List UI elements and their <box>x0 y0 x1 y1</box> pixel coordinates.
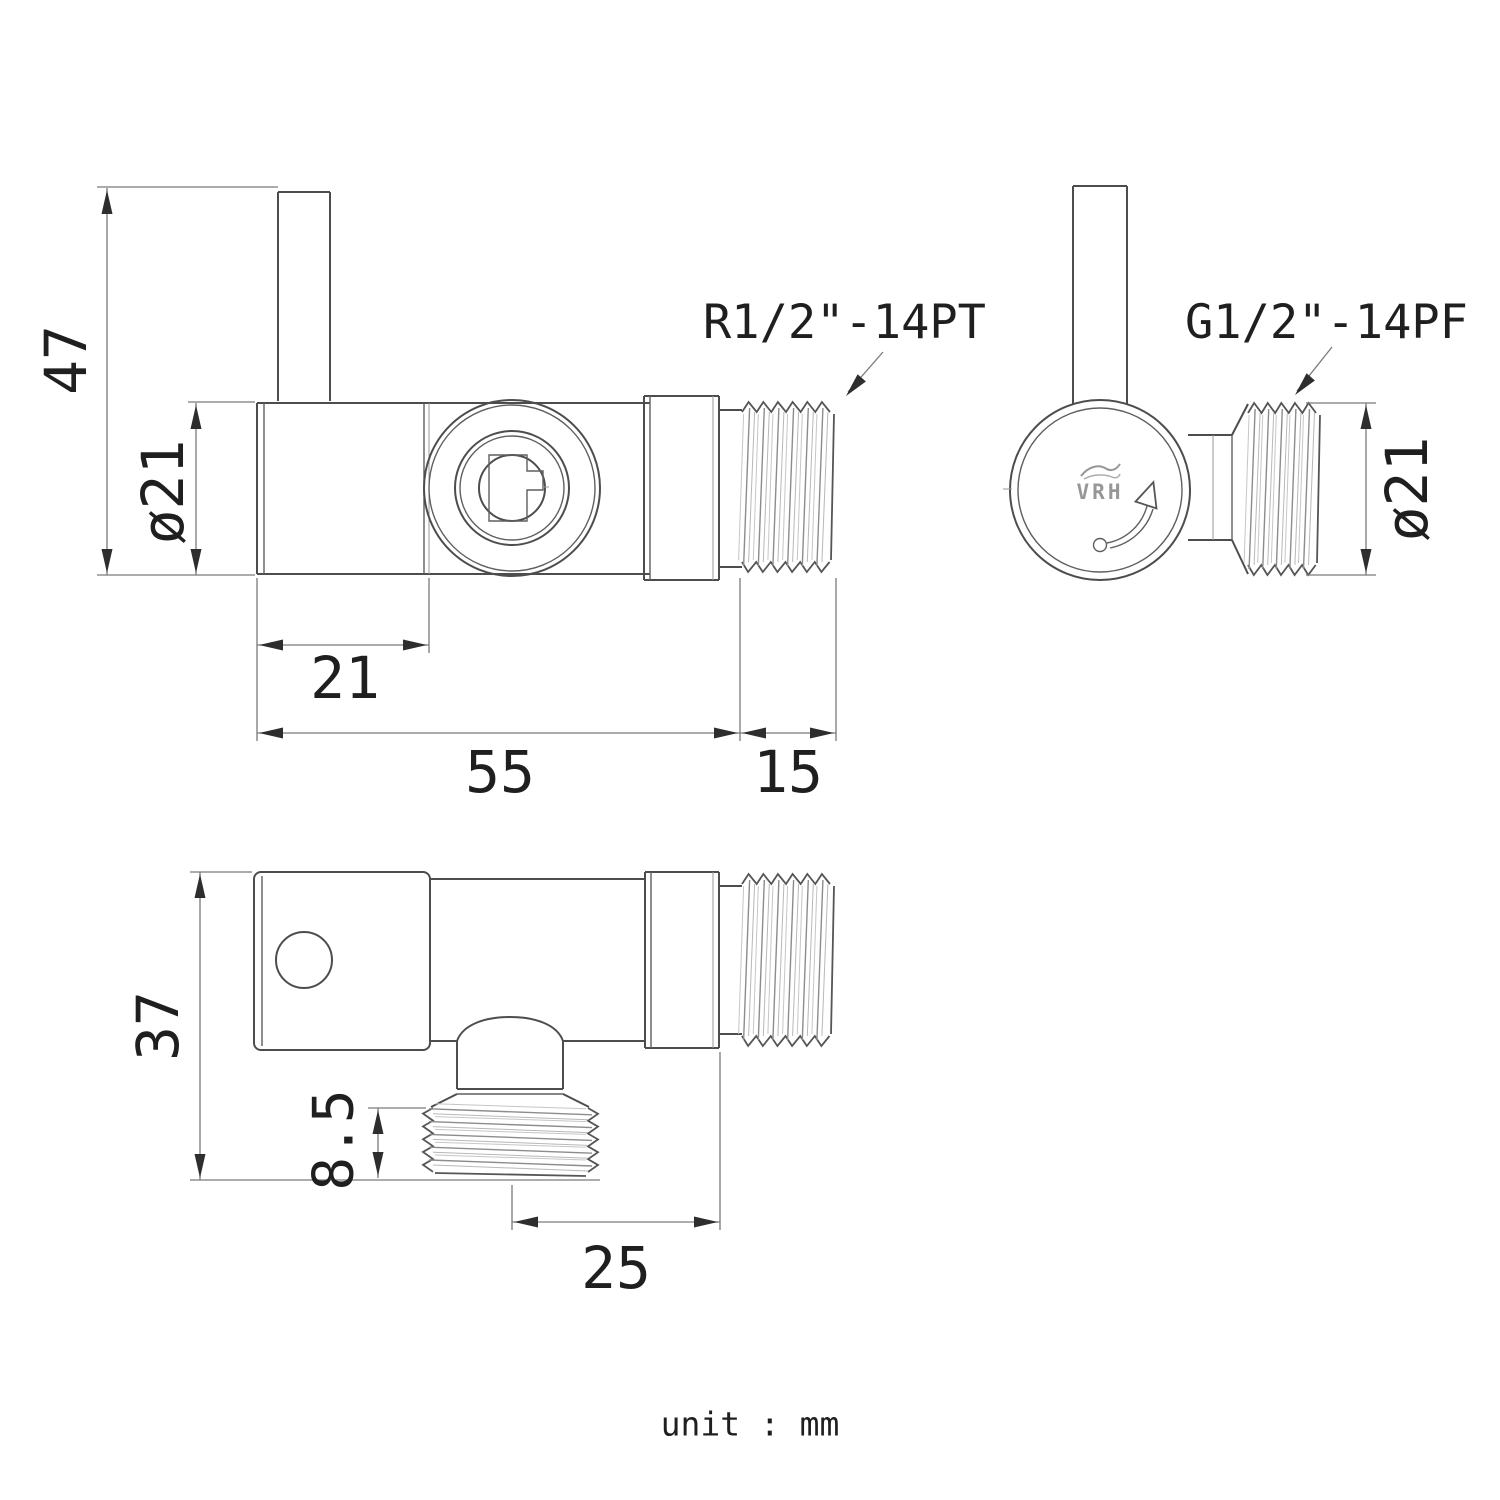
arrowhead-icon <box>403 640 427 651</box>
arrowhead-icon <box>102 190 113 214</box>
arrowhead-icon <box>195 1154 206 1178</box>
arrowhead-icon <box>259 728 283 739</box>
brand-logo-text: VRH <box>1077 480 1124 504</box>
outlet-thread-spec-label: G1/2"-14PF <box>1185 295 1468 350</box>
thread-line <box>1309 413 1315 565</box>
arrowhead-icon <box>810 728 834 739</box>
dim-15-label: 15 <box>753 738 823 806</box>
thread-line <box>1249 409 1255 569</box>
thread-line <box>758 408 764 566</box>
thread-line <box>831 886 834 1034</box>
thread-line <box>1248 565 1316 575</box>
bottom-outlet <box>431 1017 589 1107</box>
arrowhead-icon <box>195 874 206 898</box>
thread-line <box>742 402 830 412</box>
arrowhead-icon <box>694 1217 718 1228</box>
inlet-threads-top-view <box>739 874 834 1046</box>
handle-screw-hole <box>276 932 332 988</box>
brand-wave-icon <box>1081 464 1120 479</box>
body-tube <box>430 879 645 1041</box>
thread-line <box>1295 413 1301 565</box>
thread-line <box>817 880 823 1040</box>
thread-line <box>1276 409 1282 569</box>
thread-line <box>758 880 764 1040</box>
arrowhead-icon <box>1361 405 1372 429</box>
thread-line <box>822 884 828 1036</box>
thread-line <box>1263 409 1269 569</box>
thread-line <box>429 1134 592 1140</box>
thread-line <box>1285 415 1290 563</box>
thread-line <box>744 408 750 566</box>
thread-line <box>773 880 779 1040</box>
top-view: 37 8.5 25 <box>124 872 834 1302</box>
ball-housing <box>424 400 600 576</box>
arrowhead-icon <box>102 549 113 573</box>
thread-line <box>788 880 794 1040</box>
arrowhead-icon <box>714 728 738 739</box>
dim-55-label: 55 <box>465 738 535 806</box>
thread-line <box>802 880 808 1040</box>
thread-line <box>429 1147 592 1153</box>
dim-37-label: 37 <box>124 991 192 1061</box>
arrowhead-icon <box>1361 549 1372 573</box>
arrowhead-icon <box>842 374 866 399</box>
arrowhead-icon <box>259 640 283 651</box>
thread-line <box>817 408 823 566</box>
thread-line <box>744 880 750 1040</box>
handle-stem <box>278 192 330 401</box>
thread-line <box>1244 415 1249 563</box>
thread-line <box>433 1165 588 1171</box>
dim-25-label: 25 <box>581 1234 651 1302</box>
dim-47-label: 47 <box>32 325 100 395</box>
outlet-neck <box>1188 404 1248 574</box>
thread-line <box>742 874 830 884</box>
thread-line <box>739 886 744 1034</box>
inlet-thread-spec-label: R1/2"-14PT <box>703 295 986 350</box>
thread-line <box>1299 415 1304 563</box>
valve-technical-drawing: 47 ø21 21 55 15 R1/2"-14PT <box>0 0 1500 1500</box>
rotation-arrowhead <box>1136 482 1157 508</box>
thread-line <box>1304 409 1310 569</box>
arrowhead-icon <box>191 549 202 573</box>
arrowhead-icon <box>373 1152 384 1176</box>
arrowhead-icon <box>514 1217 538 1228</box>
thread-line <box>429 1160 592 1166</box>
outlet-threads-end <box>1244 403 1320 575</box>
thread-line <box>773 408 779 566</box>
inlet-thread-spec: R1/2"-14PT <box>703 295 986 392</box>
collar-top-view <box>645 872 742 1048</box>
dim-8-5: 8.5 <box>302 1089 427 1190</box>
bottom-outlet-threads <box>423 1104 598 1176</box>
thread-line <box>429 1122 592 1128</box>
thread-line <box>435 1173 586 1176</box>
dim-dia21-side: ø21 <box>97 402 255 575</box>
dim-21: 21 <box>257 578 429 741</box>
dim-21-label: 21 <box>310 644 380 712</box>
thread-line <box>1290 409 1296 569</box>
thread-line <box>429 1109 592 1115</box>
collar <box>644 396 742 580</box>
inlet-threads <box>739 402 834 572</box>
thread-line <box>822 412 828 562</box>
thread-line <box>739 414 744 560</box>
unit-label: unit : mm <box>661 1405 840 1444</box>
thread-line <box>1254 413 1260 565</box>
side-view: 47 ø21 21 55 15 R1/2"-14PT <box>32 187 986 806</box>
end-view: VRH ø21 G1/2"-14PF <box>1003 186 1468 580</box>
dim-dia21-end: ø21 <box>1306 403 1441 575</box>
thread-line <box>1268 413 1274 565</box>
thread-line <box>1258 415 1263 563</box>
thread-line <box>802 408 808 566</box>
dim-8-5-label: 8.5 <box>302 1089 367 1190</box>
thread-line <box>1317 415 1320 563</box>
arrowhead-icon <box>373 1110 384 1134</box>
technical-drawing-page: 47 ø21 21 55 15 R1/2"-14PT <box>0 0 1500 1500</box>
handle-stem-end <box>1073 186 1127 404</box>
dim-dia21-side-label: ø21 <box>129 440 197 545</box>
thread-line <box>435 1104 586 1109</box>
thread-line <box>788 408 794 566</box>
handle-square <box>254 872 430 1050</box>
arrowhead-icon <box>1291 373 1315 398</box>
thread-line <box>1271 415 1276 563</box>
thread-line <box>423 1108 433 1172</box>
dim-dia21-end-label: ø21 <box>1373 437 1441 542</box>
arrowhead-icon <box>191 405 202 429</box>
thread-line <box>831 414 834 560</box>
arrowhead-icon <box>742 728 766 739</box>
dial-face: VRH <box>1003 400 1190 580</box>
thread-line <box>1281 413 1287 565</box>
outlet-thread-spec: G1/2"-14PF <box>1185 295 1468 391</box>
